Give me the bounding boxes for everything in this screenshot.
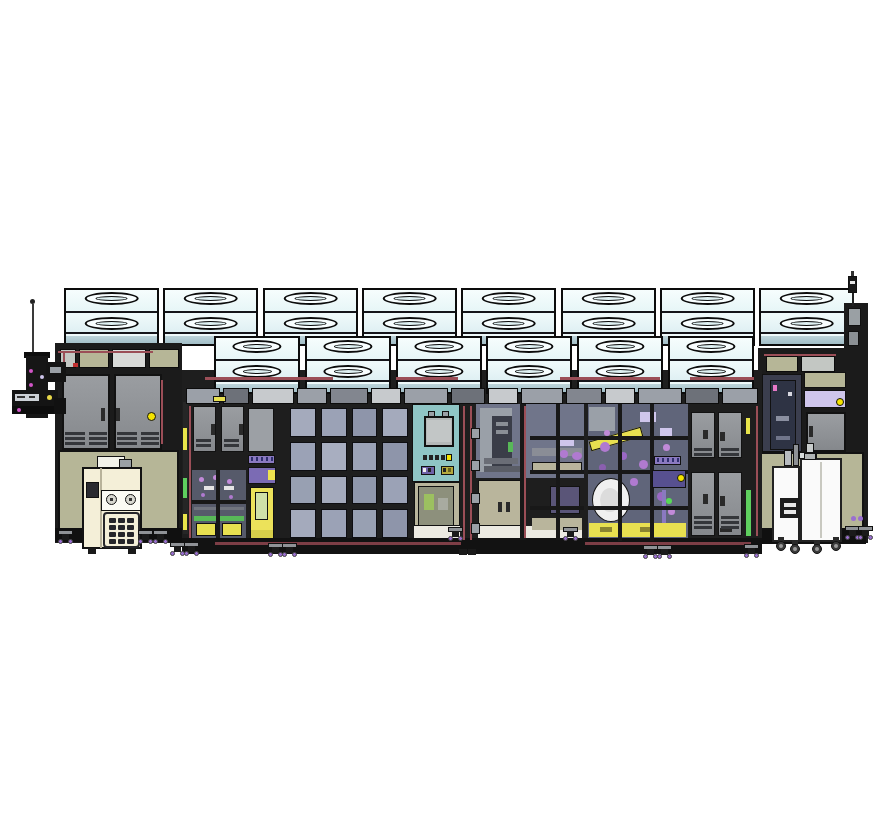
foot-dot	[292, 552, 297, 557]
foot-dot	[170, 551, 175, 556]
caster-wheel	[811, 540, 823, 555]
leveling-foot	[448, 527, 463, 541]
wheel-hub	[779, 544, 783, 548]
foot-dot	[858, 535, 863, 540]
caster-wheel	[775, 537, 787, 552]
foot-dot	[643, 554, 648, 559]
leveling-foot	[58, 530, 73, 544]
foot-dot	[845, 535, 850, 540]
foot-dot	[448, 536, 453, 541]
foot-dot	[282, 552, 287, 557]
foot-dot	[458, 536, 463, 541]
leveling-foot	[563, 527, 578, 541]
foot-dot	[667, 554, 672, 559]
foot-dot	[138, 539, 143, 544]
foot-dot	[68, 539, 73, 544]
wheel-hub	[815, 547, 819, 551]
foot-dot	[268, 552, 273, 557]
wheel-hub	[793, 547, 797, 551]
foot-dot	[563, 536, 568, 541]
anchor-bolt	[128, 548, 136, 554]
leveling-foot	[282, 543, 297, 557]
leveling-foot	[184, 542, 199, 556]
leveling-foot	[170, 542, 185, 556]
layer-feet	[0, 0, 879, 834]
foot-dot	[868, 535, 873, 540]
foot-dot	[153, 539, 158, 544]
caster-wheel	[789, 540, 801, 555]
anchor-bolt	[88, 548, 96, 554]
foot-dot	[744, 553, 749, 558]
foot-dot	[573, 536, 578, 541]
leveling-foot	[744, 544, 759, 558]
leveling-foot	[153, 530, 168, 544]
foot-dot	[754, 553, 759, 558]
anchor-bolt	[459, 549, 467, 555]
anchor-bolt	[468, 549, 476, 555]
foot-dot	[657, 554, 662, 559]
caster-wheel	[830, 537, 842, 552]
foot-dot	[58, 539, 63, 544]
foot-dot	[163, 539, 168, 544]
foot-dot	[184, 551, 189, 556]
leveling-foot	[268, 543, 283, 557]
leveling-foot	[657, 545, 672, 559]
foot-dot	[194, 551, 199, 556]
leveling-foot	[643, 545, 658, 559]
leveling-foot	[138, 530, 153, 544]
wheel-hub	[834, 544, 838, 548]
leveling-foot	[858, 526, 873, 540]
cad-rendering-stage	[0, 0, 879, 834]
